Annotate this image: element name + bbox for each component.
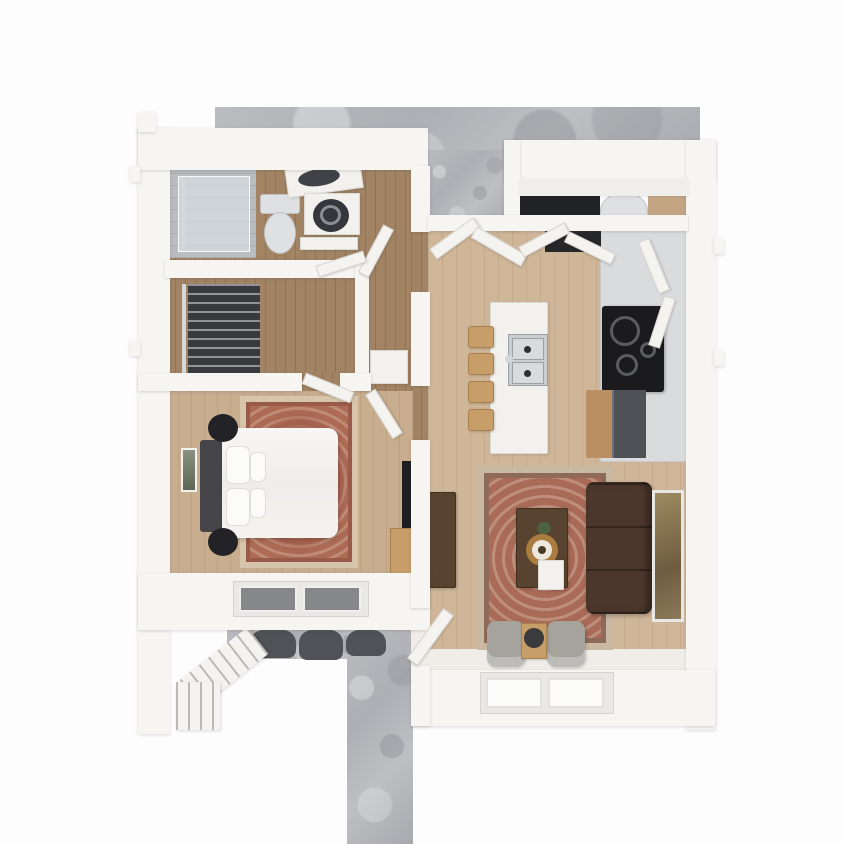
- utility-soffit: [520, 178, 688, 196]
- cooktop-burner-medium: [616, 354, 638, 376]
- closet-rod: [182, 284, 186, 376]
- bed-pillow-3: [250, 452, 266, 482]
- living-window-pane-east: [548, 678, 604, 708]
- nightstand-north: [208, 414, 238, 442]
- vanity-drawers: [300, 237, 358, 250]
- pilaster-east-2: [714, 350, 724, 366]
- bedroom-artwork: [181, 448, 197, 492]
- fridge-side-panel: [586, 390, 612, 458]
- wall-west-corridor-d: [411, 666, 430, 726]
- bar-stool-4: [468, 409, 494, 431]
- wall-bedroom-north-a: [138, 373, 302, 391]
- bed-pillow-2: [226, 488, 250, 526]
- washer-drum-ring: [320, 205, 341, 225]
- pilaster-west-1: [130, 166, 140, 182]
- living-artwork: [652, 490, 684, 622]
- bed-pillow-4: [250, 488, 266, 518]
- pilaster-east-1: [714, 238, 724, 254]
- armchair-west: [487, 621, 525, 667]
- bar-stool-2: [468, 353, 494, 375]
- pilaster-west-2: [130, 340, 140, 356]
- wall-west-corridor-c: [411, 440, 430, 608]
- wall-hall-divider: [355, 260, 369, 390]
- patio-chair-3: [346, 630, 386, 656]
- closet-hanging-clothes: [188, 284, 260, 376]
- bedroom-dresser: [390, 528, 412, 578]
- tv-console: [426, 492, 456, 588]
- patio-chair-2: [299, 630, 343, 660]
- wall-north-kitchen-section: [504, 140, 716, 180]
- bed-pillow-1: [226, 446, 250, 484]
- linen-closet-appliance: [370, 350, 408, 384]
- fridge-body: [612, 390, 646, 458]
- sink-faucet: [505, 355, 513, 363]
- shower-rail: [182, 180, 186, 248]
- bed-headboard: [200, 440, 224, 532]
- bar-stool-3: [468, 381, 494, 403]
- leather-sofa: [586, 482, 652, 614]
- sink-drain-south: [524, 370, 531, 377]
- armchair-east: [547, 621, 585, 667]
- patio-railing-post: [176, 682, 220, 730]
- parapet-top-west: [138, 112, 156, 132]
- nightstand-south: [208, 528, 238, 556]
- living-window-pane-west: [486, 678, 542, 708]
- toilet-bowl: [264, 212, 296, 254]
- table-plant: [537, 522, 551, 534]
- wall-outer-west: [138, 128, 170, 734]
- bar-stool-1: [468, 326, 494, 348]
- concrete-front-walkway: [347, 627, 413, 844]
- wall-west-corridor-b: [411, 292, 430, 386]
- bedroom-window-pane-west: [239, 586, 297, 612]
- side-table-top: [524, 628, 544, 648]
- sink-drain-north: [524, 346, 531, 353]
- wall-outer-east: [686, 140, 716, 730]
- floorplan-render-canvas: [0, 0, 844, 844]
- shower-glass-panel: [178, 176, 250, 252]
- cooktop-burner-large: [610, 316, 640, 346]
- tray-center: [538, 546, 546, 554]
- bedroom-window-pane-east: [303, 586, 361, 612]
- table-books: [538, 560, 564, 590]
- wall-north-west-section: [138, 128, 428, 170]
